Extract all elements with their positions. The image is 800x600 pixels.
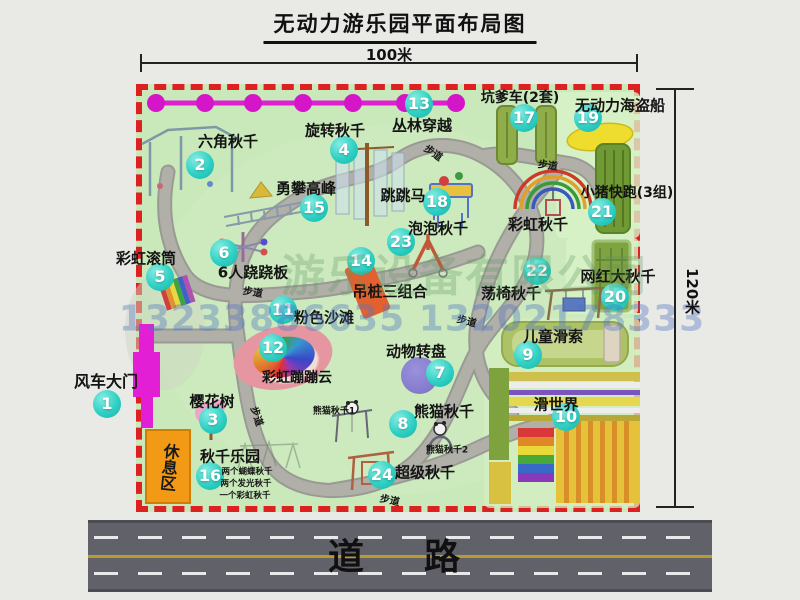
map-badge-22: 22	[523, 257, 551, 285]
map-badge-17: 17	[510, 104, 538, 132]
map-label-10: 滑世界	[533, 394, 578, 415]
map-label-20: 网红大秋千	[580, 266, 655, 287]
label-footpath: 步道	[537, 155, 559, 173]
map-label-1: 风车大门	[74, 368, 138, 392]
map-label-12: 彩虹蹦蹦云	[262, 367, 332, 387]
label-swing-park-note-2: 两个发光秋千	[220, 477, 271, 489]
label-swing-park-note-3: 一个彩虹秋千	[219, 489, 270, 501]
height-dimension-label: 120米	[682, 268, 703, 314]
map-badge-11: 11	[269, 296, 297, 324]
map-label-23: 泡泡秋千	[408, 218, 468, 239]
map-badge-2: 2	[186, 151, 214, 179]
label-rainbow-swing: 彩虹秋千	[508, 214, 568, 235]
map-badge-8: 8	[389, 410, 417, 438]
map-badge-21: 21	[588, 198, 616, 226]
map-label-22: 荡椅秋千	[481, 283, 541, 304]
page-title: 无动力游乐园平面布局图	[264, 8, 537, 44]
playground-layout-map: 无动力游乐园平面布局图 100米 120米	[0, 0, 800, 600]
map-label-17: 坑爹车(2套)	[481, 87, 560, 107]
road-label: 道 路	[328, 528, 472, 580]
map-label-16: 秋千乐园	[200, 446, 260, 467]
height-dimension-line	[674, 88, 676, 508]
map-label-5: 彩虹滚筒	[116, 248, 176, 269]
map-badge-20: 20	[601, 283, 629, 311]
map-label-4: 旋转秋千	[305, 120, 365, 141]
map-badge-1: 1	[93, 390, 121, 418]
map-label-14: 吊桩三组合	[352, 281, 427, 302]
map-badge-14: 14	[347, 247, 375, 275]
label-swing-park-note-1: 两个蝴蝶秋千	[221, 465, 272, 477]
map-label-8: 熊猫秋千	[414, 401, 474, 422]
label-panda-swing-1: 熊猫秋千1	[313, 404, 355, 417]
rest-area-label: 休息区	[154, 441, 183, 491]
map-label-21: 小猪快跑(3组)	[581, 182, 674, 202]
width-dimension-label: 100米	[366, 44, 412, 65]
map-label-2: 六角秋千	[198, 131, 258, 152]
map-badge-12: 12	[259, 334, 287, 362]
map-badge-18: 18	[423, 188, 451, 216]
windmill-gate-icon	[139, 324, 154, 354]
map-label-11: 粉色沙滩	[294, 307, 354, 328]
map-label-6: 6人跷跷板	[218, 262, 288, 283]
label-footpath: 步道	[242, 282, 264, 300]
map-badge-7: 7	[426, 359, 454, 387]
map-label-3: 樱花树	[189, 391, 234, 412]
label-panda-swing-2: 熊猫秋千2	[426, 443, 468, 456]
map-label-7: 动物转盘	[386, 341, 446, 362]
map-label-13: 丛林穿越	[392, 115, 452, 136]
map-label-9: 儿童滑索	[523, 326, 583, 347]
map-label-24: 超级秋千	[395, 462, 455, 483]
road: 道 路	[88, 520, 712, 592]
rest-area-box: 休息区	[145, 429, 191, 504]
map-label-15: 勇攀高峰	[276, 178, 336, 199]
map-label-18: 跳跳马	[380, 185, 425, 206]
windmill-gate-icon	[141, 395, 153, 428]
map-badge-24: 24	[368, 461, 396, 489]
map-label-19: 无动力海盗船	[575, 95, 665, 116]
